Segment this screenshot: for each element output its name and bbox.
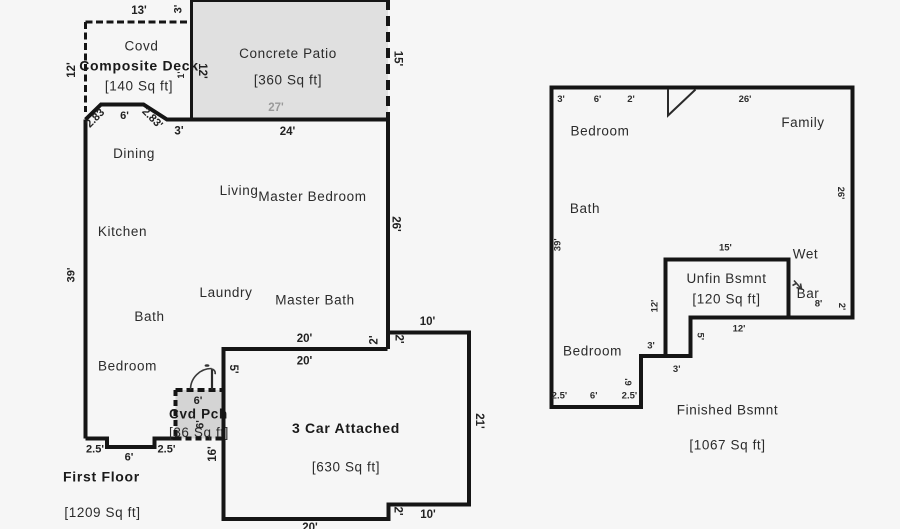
svg-text:Kitchen: Kitchen: [98, 224, 147, 239]
svg-text:20': 20': [297, 333, 313, 345]
svg-text:6': 6': [594, 94, 602, 105]
svg-text:12': 12': [66, 62, 78, 78]
svg-text:Living: Living: [220, 183, 259, 198]
svg-text:Laundry: Laundry: [200, 285, 253, 300]
svg-text:15': 15': [719, 243, 732, 254]
svg-text:2.5': 2.5': [552, 390, 567, 401]
svg-text:20': 20': [302, 522, 318, 529]
svg-text:Bath: Bath: [134, 309, 164, 324]
svg-text:Unfin Bsmnt: Unfin Bsmnt: [686, 271, 766, 286]
svg-text:6': 6': [125, 452, 134, 464]
svg-text:First Floor: First Floor: [63, 469, 140, 485]
svg-text:3': 3': [557, 94, 565, 105]
svg-text:Master Bedroom: Master Bedroom: [258, 189, 366, 204]
svg-text:5': 5': [227, 364, 239, 373]
svg-text:12': 12': [650, 300, 661, 313]
svg-text:3': 3': [173, 4, 185, 13]
svg-text:2': 2': [393, 334, 405, 343]
svg-text:Finished Bsmnt: Finished Bsmnt: [677, 403, 778, 418]
svg-text:Wet: Wet: [793, 246, 819, 261]
svg-text:2': 2': [369, 335, 381, 344]
svg-text:12': 12': [733, 324, 746, 335]
svg-text:Bedroom: Bedroom: [98, 359, 157, 374]
svg-text:20': 20': [297, 356, 313, 368]
svg-text:6': 6': [194, 420, 206, 429]
svg-text:Family: Family: [781, 115, 824, 130]
svg-text:26': 26': [739, 94, 752, 105]
svg-text:21': 21': [473, 413, 485, 429]
svg-text:Cvd Pch: Cvd Pch: [169, 407, 228, 422]
svg-text:15': 15': [392, 51, 404, 67]
svg-text:13': 13': [131, 5, 147, 17]
svg-text:39': 39': [66, 267, 78, 282]
svg-text:16': 16': [207, 446, 219, 462]
svg-text:Concrete Patio: Concrete Patio: [239, 46, 337, 61]
svg-text:10': 10': [420, 316, 436, 328]
svg-text:[120 Sq ft]: [120 Sq ft]: [692, 292, 760, 307]
svg-text:[1209 Sq ft]: [1209 Sq ft]: [64, 505, 140, 520]
svg-text:24': 24': [280, 126, 296, 138]
svg-text:[1067 Sq ft]: [1067 Sq ft]: [689, 438, 765, 453]
svg-text:39': 39': [553, 238, 564, 251]
svg-text:3 Car Attached: 3 Car Attached: [292, 420, 400, 436]
svg-text:[360 Sq ft]: [360 Sq ft]: [254, 73, 322, 88]
svg-text:Covd: Covd: [125, 39, 159, 54]
svg-text:Composite Deck: Composite Deck: [79, 58, 199, 74]
svg-text:6': 6': [624, 378, 635, 386]
svg-text:3': 3': [673, 364, 681, 375]
svg-text:2.5': 2.5': [622, 390, 637, 401]
svg-text:Bedroom: Bedroom: [571, 124, 630, 139]
svg-text:Bath: Bath: [570, 201, 600, 216]
svg-text:2.5': 2.5': [158, 444, 176, 456]
svg-text:5': 5': [695, 333, 706, 341]
svg-text:2': 2': [836, 303, 847, 311]
svg-text:[140 Sq ft]: [140 Sq ft]: [105, 79, 173, 94]
svg-text:10': 10': [420, 509, 436, 521]
svg-text:Bedroom: Bedroom: [563, 344, 622, 359]
svg-text:Dining: Dining: [113, 146, 155, 161]
svg-text:2': 2': [392, 506, 404, 515]
svg-text:6': 6': [120, 110, 129, 122]
svg-text:6': 6': [194, 395, 203, 407]
svg-text:3': 3': [647, 341, 655, 352]
svg-text:27': 27': [268, 102, 284, 114]
svg-text:2.5': 2.5': [86, 444, 104, 456]
svg-text:3': 3': [174, 126, 183, 138]
svg-text:6': 6': [590, 390, 598, 401]
svg-text:8': 8': [815, 299, 823, 310]
svg-text:26': 26': [390, 216, 402, 232]
svg-text:26': 26': [835, 187, 846, 200]
svg-text:Master Bath: Master Bath: [275, 293, 354, 308]
svg-text:2': 2': [627, 94, 635, 105]
svg-text:[630 Sq ft]: [630 Sq ft]: [312, 460, 380, 475]
svg-text:1': 1': [176, 71, 186, 78]
